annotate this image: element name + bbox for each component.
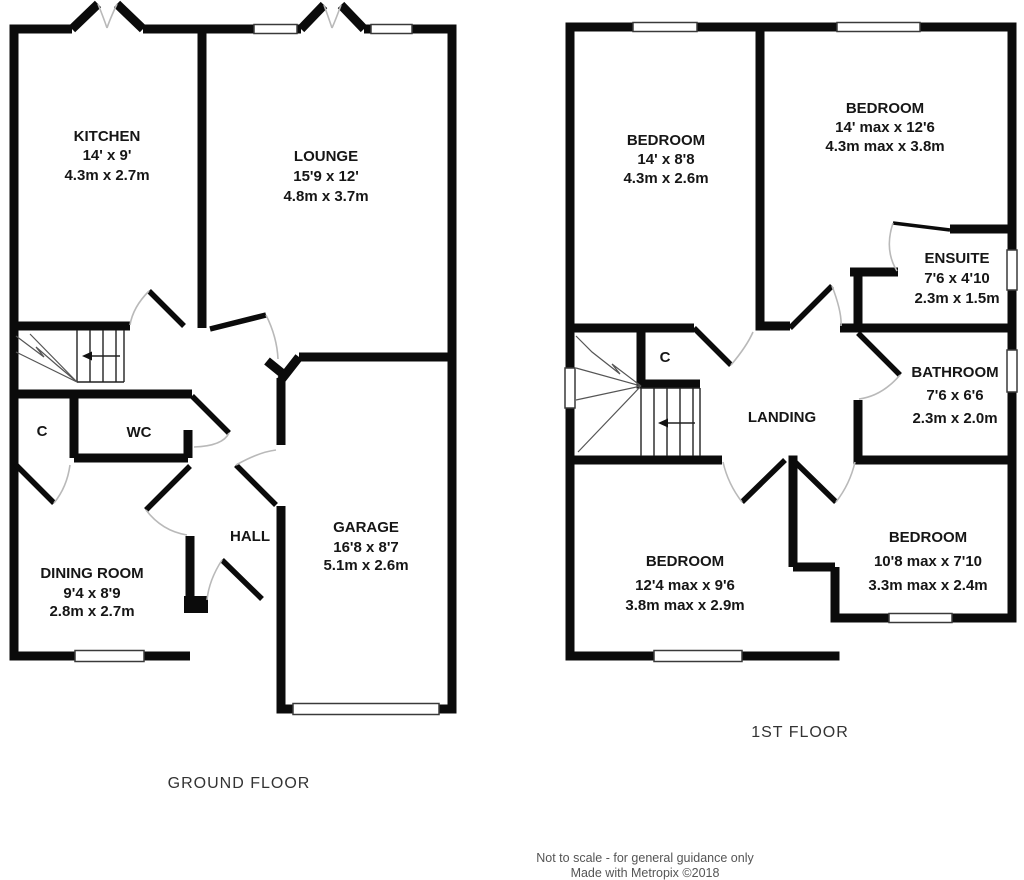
bedroom-front-left-dim-m: 4.3m x 2.6m: [623, 170, 708, 187]
garage-label: GARAGE: [333, 519, 399, 536]
stair-treads: [641, 388, 700, 456]
ensuite-window: [1007, 250, 1017, 290]
bathroom-window: [1007, 350, 1017, 392]
ground-floor-title: GROUND FLOOR: [168, 775, 311, 792]
bedroom-front-right-window: [837, 23, 920, 32]
first-floor-labels: BEDROOM 14' x 8'8 4.3m x 2.6m BEDROOM 14…: [623, 100, 999, 614]
footer: Not to scale - for general guidance only…: [536, 851, 754, 880]
stair-break-line: [16, 336, 77, 382]
footer-disclaimer: Not to scale - for general guidance only: [536, 851, 754, 865]
bedroom-front-left-dim-ft: 14' x 8'8: [637, 151, 694, 168]
bedroom-front-right-dim-m: 4.3m max x 3.8m: [825, 138, 944, 155]
ground-floor-labels: KITCHEN 14' x 9' 4.3m x 2.7m LOUNGE 15'9…: [37, 128, 409, 620]
floor-plan-page: KITCHEN 14' x 9' 4.3m x 2.7m LOUNGE 15'9…: [0, 0, 1024, 880]
bedroom-back-left-window: [654, 651, 742, 662]
lounge-dim-m: 4.8m x 3.7m: [283, 188, 368, 205]
bedroom-back-right-dim-ft: 10'8 max x 7'10: [874, 553, 982, 570]
bathroom-dim-m: 2.3m x 2.0m: [912, 410, 997, 427]
front-door-post: [184, 596, 208, 613]
dining-room-label: DINING ROOM: [40, 565, 143, 582]
lounge-window-right: [371, 25, 412, 34]
first-floor-title: 1ST FLOOR: [751, 724, 849, 741]
hall-label: HALL: [230, 528, 270, 545]
stair-direction-arrow-icon: [82, 352, 92, 361]
ground-floor-door-leaves: [15, 291, 276, 599]
bedroom-back-right-window: [889, 614, 952, 623]
garage-dim-ft: 16'8 x 8'7: [333, 539, 399, 556]
floor-plan-svg: KITCHEN 14' x 9' 4.3m x 2.7m LOUNGE 15'9…: [0, 0, 1024, 880]
garage-dim-m: 5.1m x 2.6m: [323, 557, 408, 574]
bedroom-back-right-label: BEDROOM: [889, 529, 967, 546]
kitchen-dim-m: 4.3m x 2.7m: [64, 167, 149, 184]
bedroom-back-left-dim-m: 3.8m max x 2.9m: [625, 597, 744, 614]
kitchen-dim-ft: 14' x 9': [83, 147, 132, 164]
dining-room-dim-m: 2.8m x 2.7m: [49, 603, 134, 620]
bathroom-dim-ft: 7'6 x 6'6: [926, 387, 983, 404]
ensuite-dim-ft: 7'6 x 4'10: [924, 270, 990, 287]
bedroom-front-right-dim-ft: 14' max x 12'6: [835, 119, 935, 136]
stair-winders: [576, 368, 641, 452]
bedroom-front-left-window: [633, 23, 697, 32]
ensuite-dim-m: 2.3m x 1.5m: [914, 290, 999, 307]
garage-door-opening: [293, 704, 439, 715]
ensuite-door-leaf: [893, 223, 950, 230]
ground-floor-plan: KITCHEN 14' x 9' 4.3m x 2.7m LOUNGE 15'9…: [10, 4, 457, 792]
bedroom-back-left-dim-ft: 12'4 max x 9'6: [635, 577, 735, 594]
lounge-window-left: [254, 25, 297, 34]
landing-label: LANDING: [748, 409, 816, 426]
dining-room-window: [75, 651, 144, 662]
bedroom-back-left-label: BEDROOM: [646, 553, 724, 570]
footer-credit: Made with Metropix ©2018: [571, 866, 720, 880]
first-floor-plan: BEDROOM 14' x 8'8 4.3m x 2.6m BEDROOM 14…: [565, 23, 1017, 742]
kitchen-label: KITCHEN: [74, 128, 141, 145]
lounge-label: LOUNGE: [294, 148, 358, 165]
stair-direction-arrow-icon: [658, 419, 668, 428]
ground-floor-stairs: [16, 330, 124, 382]
ground-cupboard-label: C: [37, 423, 48, 440]
bedroom-front-left-label: BEDROOM: [627, 132, 705, 149]
stairwell-window: [565, 368, 575, 408]
first-cupboard-label: C: [660, 349, 671, 366]
dining-room-dim-ft: 9'4 x 8'9: [63, 585, 120, 602]
ensuite-label: ENSUITE: [924, 250, 989, 267]
bedroom-back-right-dim-m: 3.3m max x 2.4m: [868, 577, 987, 594]
stair-break-line: [576, 336, 641, 386]
wc-label: WC: [127, 424, 152, 441]
bedroom-front-right-label: BEDROOM: [846, 100, 924, 117]
lounge-dim-ft: 15'9 x 12': [293, 168, 359, 185]
bathroom-label: BATHROOM: [911, 364, 998, 381]
